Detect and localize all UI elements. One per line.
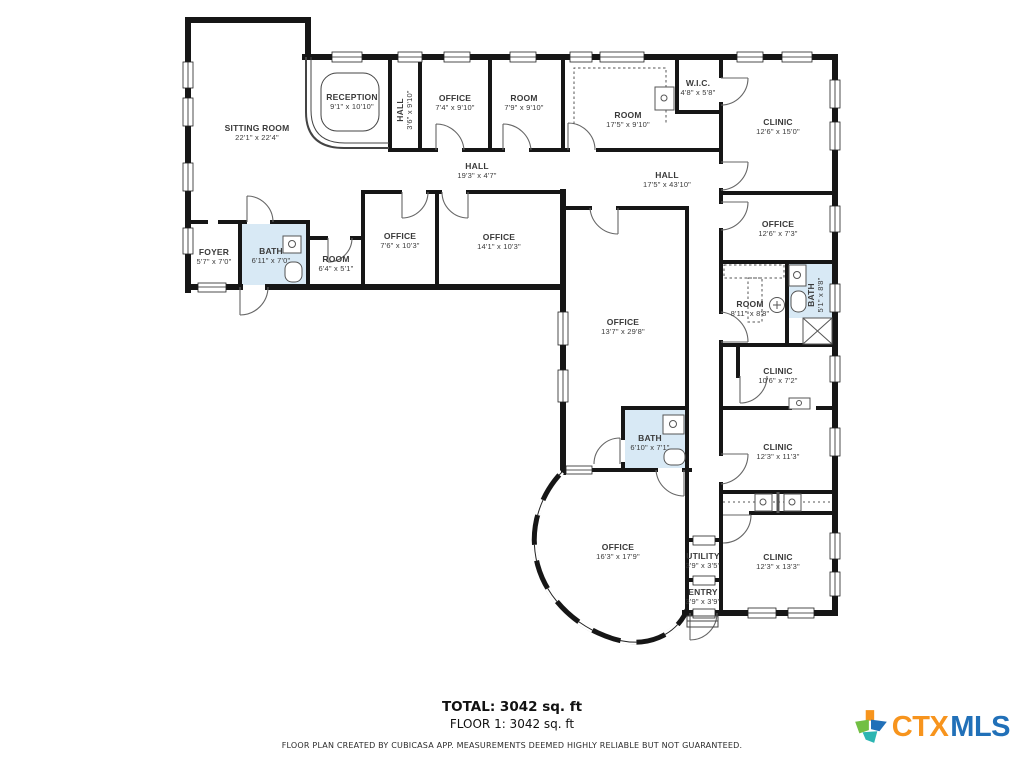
logo-ctx-text: CTX (892, 711, 949, 744)
room-label-room-top: ROOM7'9" x 9'10" (504, 94, 543, 112)
exterior-walls (188, 20, 835, 642)
room-label-utility: UTILITY3'9" x 3'5" (686, 552, 721, 570)
sink-drain-icon (794, 272, 801, 279)
room-label-sitting-room: SITTING ROOM22'1" x 22'4" (225, 124, 290, 142)
room-label-office-mid1: OFFICE7'6" x 10'3" (380, 232, 419, 250)
room-label-clinic-lower1: CLINIC12'3" x 11'3" (756, 443, 799, 461)
room-label-room-right: ROOM8'11" x 8'8" (731, 300, 770, 318)
floor-plan-drawing (0, 0, 1024, 768)
room-label-reception: RECEPTION9'1" x 10'10" (326, 93, 377, 111)
room-label-clinic-topright: CLINIC12'6" x 15'0" (756, 118, 800, 136)
room-label-office-top1: OFFICE7'4" x 9'10" (435, 94, 474, 112)
ctxmls-logo: CTXMLS (852, 708, 1010, 746)
room-label-hall-main: HALL17'5" x 43'10" (643, 171, 691, 189)
logo-mls-text: MLS (950, 711, 1010, 744)
room-label-bath-right: BATH5'1" x 8'8" (807, 278, 825, 313)
room-label-clinic-lower2: CLINIC12'3" x 13'3" (756, 553, 800, 571)
room-label-bath-left: BATH6'11" x 7'0" (252, 247, 291, 265)
room-label-bath-middle: BATH6'10" x 7'1" (630, 434, 669, 452)
room-label-clinic-mid: CLINIC10'6" x 7'2" (758, 367, 797, 385)
room-label-wic: W.I.C.4'8" x 5'8" (681, 79, 716, 97)
sink-drain-icon (661, 95, 667, 101)
room-label-room-large: ROOM17'5" x 9'10" (606, 111, 650, 129)
toilet-icon (791, 291, 806, 312)
room-label-room-small: ROOM6'4" x 5'1" (319, 255, 354, 273)
sink-drain-icon (797, 401, 802, 406)
counter-dashed (724, 265, 784, 278)
room-label-office-bay: OFFICE16'3" x 17'9" (596, 543, 640, 561)
sink-drain-icon (670, 421, 677, 428)
sink-drain-icon (760, 499, 766, 505)
sink-drain-icon (789, 499, 795, 505)
room-label-office-right: OFFICE12'6" x 7'3" (758, 220, 797, 238)
room-label-foyer: FOYER5'7" x 7'0" (197, 248, 232, 266)
room-label-hall-horizontal: HALL19'3" x 4'7" (457, 162, 496, 180)
room-label-office-mid2: OFFICE14'1" x 10'3" (477, 233, 521, 251)
room-label-hall-small: HALL3'6" x 9'10" (396, 90, 414, 129)
room-label-office-tall: OFFICE13'7" x 29'8" (601, 318, 645, 336)
room-label-entry: ENTRY3'9" x 3'9" (686, 588, 721, 606)
floor-plan-page: SITTING ROOM22'1" x 22'4" RECEPTION9'1" … (0, 0, 1024, 768)
texas-icon (852, 708, 890, 746)
